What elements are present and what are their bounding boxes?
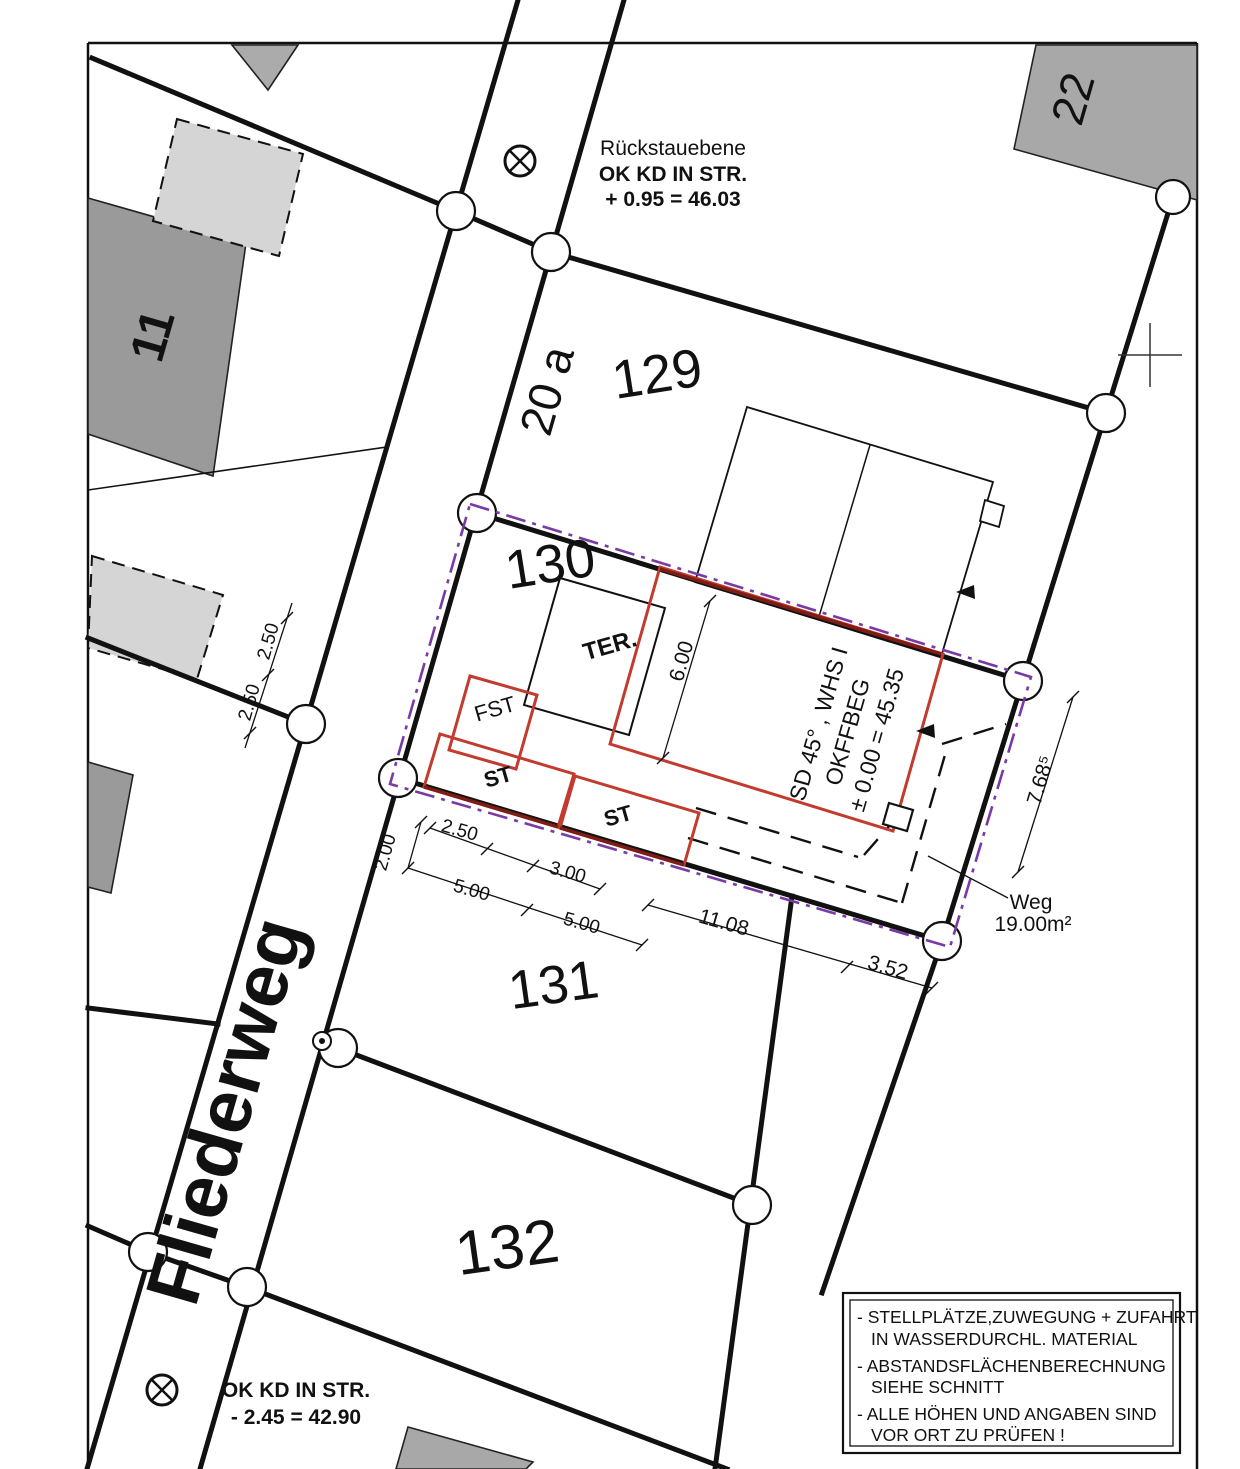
- roof-chimney: [980, 500, 1004, 527]
- dim-768: 7.68⁵: [1023, 753, 1059, 807]
- backflow-line2: + 0.95 = 46.03: [605, 188, 740, 211]
- boundary-point: [1156, 180, 1190, 214]
- st2-label: ST: [601, 800, 635, 832]
- building-top-fragment: [232, 45, 298, 90]
- dim-tick: [402, 862, 414, 874]
- note-line-4: SIEHE SCHNITT: [871, 1377, 1005, 1397]
- dim-tick: [244, 727, 256, 739]
- note-line-2: IN WASSERDURCHL. MATERIAL: [871, 1329, 1138, 1349]
- boundary-point: [532, 233, 570, 271]
- boundary-point: [1004, 662, 1042, 700]
- street-name-label: Fliederweg: [130, 908, 321, 1313]
- boundary-point: [733, 1186, 771, 1224]
- backflow-title: Rückstauebene: [600, 137, 746, 160]
- dim-tick: [636, 939, 648, 951]
- parcel-label-129: 129: [608, 338, 706, 411]
- weg-label: Weg: [1010, 891, 1053, 914]
- street-level-line2: - 2.45 = 42.90: [231, 1406, 361, 1429]
- parcel-line-west-thin: [88, 447, 387, 490]
- boundary-west-mid: [88, 1008, 218, 1024]
- site-plan-drawing: Fliederweg 11 22 20 a 129 130 131 132 Rü…: [0, 0, 1240, 1469]
- dim-tick: [415, 816, 427, 828]
- boundary-east-lower: [822, 941, 942, 1293]
- boundary-point: [287, 705, 325, 743]
- manhole-symbol-top: [505, 146, 535, 176]
- planned-building-b: [88, 556, 223, 679]
- boundary-east-main: [942, 197, 1173, 941]
- dim-1108: 11.08: [696, 905, 751, 941]
- boundary-point: [1087, 394, 1125, 432]
- boundary-point: [379, 759, 417, 797]
- dim-500-b: 5.00: [561, 909, 602, 939]
- survey-cross-icon: [1118, 323, 1182, 387]
- survey-point-dot: [319, 1038, 325, 1044]
- dim-tick: [262, 669, 274, 681]
- fst-label: FST: [472, 691, 519, 726]
- dim-300: 3.00: [547, 858, 588, 888]
- notes-box: - STELLPLÄTZE,ZUWEGUNG + ZUFAHRT IN WASS…: [843, 1293, 1197, 1453]
- dim-tick: [594, 883, 606, 895]
- boundary-point: [437, 192, 475, 230]
- building-bottom: [396, 1427, 533, 1469]
- dim-250-b: 2.50: [254, 621, 284, 662]
- parcel-label-132: 132: [451, 1206, 563, 1289]
- path-line-1: [696, 808, 858, 857]
- note-line-5: - ALLE HÖHEN UND ANGABEN SIND: [857, 1404, 1157, 1424]
- dim-600: 6.00: [665, 638, 698, 684]
- building-left-small: [88, 762, 133, 893]
- dim-200: 2.00: [371, 832, 401, 873]
- note-line-3: - ABSTANDSFLÄCHENBERECHNUNG: [857, 1356, 1166, 1376]
- note-line-1: - STELLPLÄTZE,ZUWEGUNG + ZUFAHRT: [857, 1307, 1197, 1327]
- dim-line-200: [408, 822, 421, 868]
- boundary-point: [228, 1268, 266, 1306]
- existing-buildings: [88, 45, 1197, 1469]
- dim-tick: [1067, 691, 1079, 703]
- drawing-frame: [88, 43, 1197, 1469]
- building-22: [1014, 45, 1197, 200]
- path-line-5: [942, 724, 1006, 744]
- dim-tick: [481, 843, 493, 855]
- dim-tick: [704, 595, 716, 607]
- dim-chain-lower: [408, 868, 642, 945]
- st1-label: ST: [481, 761, 515, 793]
- backflow-line1: OK KD IN STR.: [599, 163, 747, 186]
- site-plan-page: Fliederweg 11 22 20 a 129 130 131 132 Rü…: [0, 0, 1240, 1469]
- boundary-131-132: [338, 1048, 752, 1205]
- dim-tick: [424, 822, 436, 834]
- manhole-symbol-bottom: [147, 1375, 177, 1405]
- parcel-label-131: 131: [505, 949, 603, 1021]
- dim-tick: [642, 899, 654, 911]
- weg-area-label: 19.00m²: [994, 913, 1071, 936]
- street-level-line1: OK KD IN STR.: [222, 1379, 370, 1402]
- overlap-st2-south: [560, 828, 684, 865]
- dim-250-c: 2.50: [439, 816, 480, 846]
- dim-352: 3.52: [865, 951, 911, 984]
- house-roof-outline: [695, 407, 1004, 657]
- dim-tick: [281, 612, 293, 624]
- dim-250-a: 2.50: [235, 682, 265, 723]
- boundary-131-east: [715, 896, 792, 1469]
- fst-box: [449, 676, 537, 769]
- note-line-6: VOR ORT ZU PRÜFEN !: [871, 1425, 1065, 1445]
- dim-500-a: 5.00: [451, 876, 492, 906]
- dim-tick: [1012, 866, 1024, 878]
